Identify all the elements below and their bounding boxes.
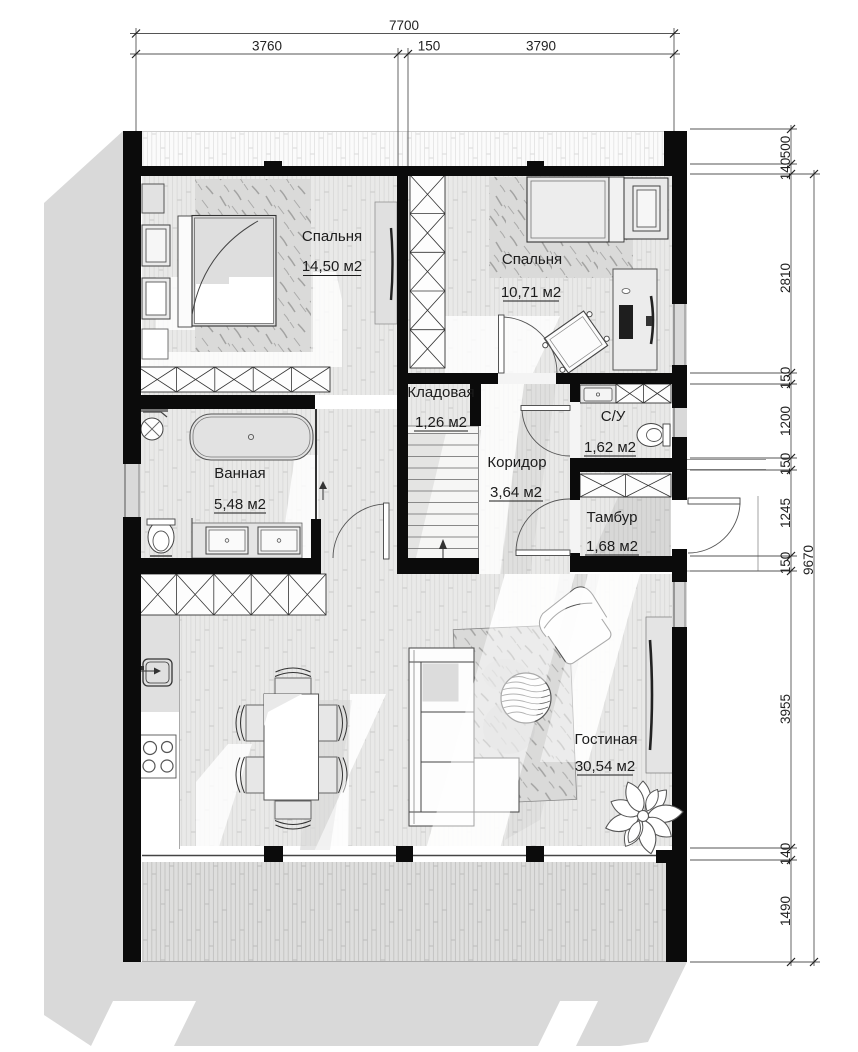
svg-text:14,50 м2: 14,50 м2: [302, 258, 362, 275]
svg-text:3955: 3955: [778, 694, 793, 724]
svg-text:1245: 1245: [778, 498, 793, 528]
svg-text:1,26 м2: 1,26 м2: [415, 414, 467, 431]
svg-text:1,62 м2: 1,62 м2: [584, 439, 636, 456]
svg-text:Тамбур: Тамбур: [587, 509, 638, 526]
svg-text:Спальня: Спальня: [502, 251, 562, 268]
svg-text:500: 500: [778, 136, 793, 159]
svg-text:150: 150: [778, 367, 793, 390]
svg-text:Гостиная: Гостиная: [575, 731, 638, 748]
svg-text:3790: 3790: [526, 39, 556, 54]
svg-text:Спальня: Спальня: [302, 228, 362, 245]
svg-text:150: 150: [778, 453, 793, 476]
svg-text:2810: 2810: [778, 263, 793, 293]
svg-text:Ванная: Ванная: [214, 465, 265, 482]
svg-text:Коридор: Коридор: [487, 454, 546, 471]
svg-text:1490: 1490: [778, 896, 793, 926]
svg-text:7700: 7700: [389, 18, 419, 33]
svg-text:9670: 9670: [801, 545, 816, 575]
svg-text:140: 140: [778, 843, 793, 866]
svg-text:150: 150: [778, 552, 793, 575]
svg-text:3,64 м2: 3,64 м2: [490, 484, 542, 501]
svg-text:140: 140: [778, 158, 793, 181]
svg-text:С/У: С/У: [601, 408, 626, 425]
svg-text:30,54 м2: 30,54 м2: [575, 758, 635, 775]
svg-text:3760: 3760: [252, 39, 282, 54]
svg-text:1,68 м2: 1,68 м2: [586, 538, 638, 555]
svg-text:150: 150: [418, 39, 441, 54]
svg-text:Кладовая: Кладовая: [407, 384, 474, 401]
svg-text:1200: 1200: [778, 406, 793, 436]
svg-text:5,48 м2: 5,48 м2: [214, 496, 266, 513]
svg-text:10,71 м2: 10,71 м2: [501, 284, 561, 301]
